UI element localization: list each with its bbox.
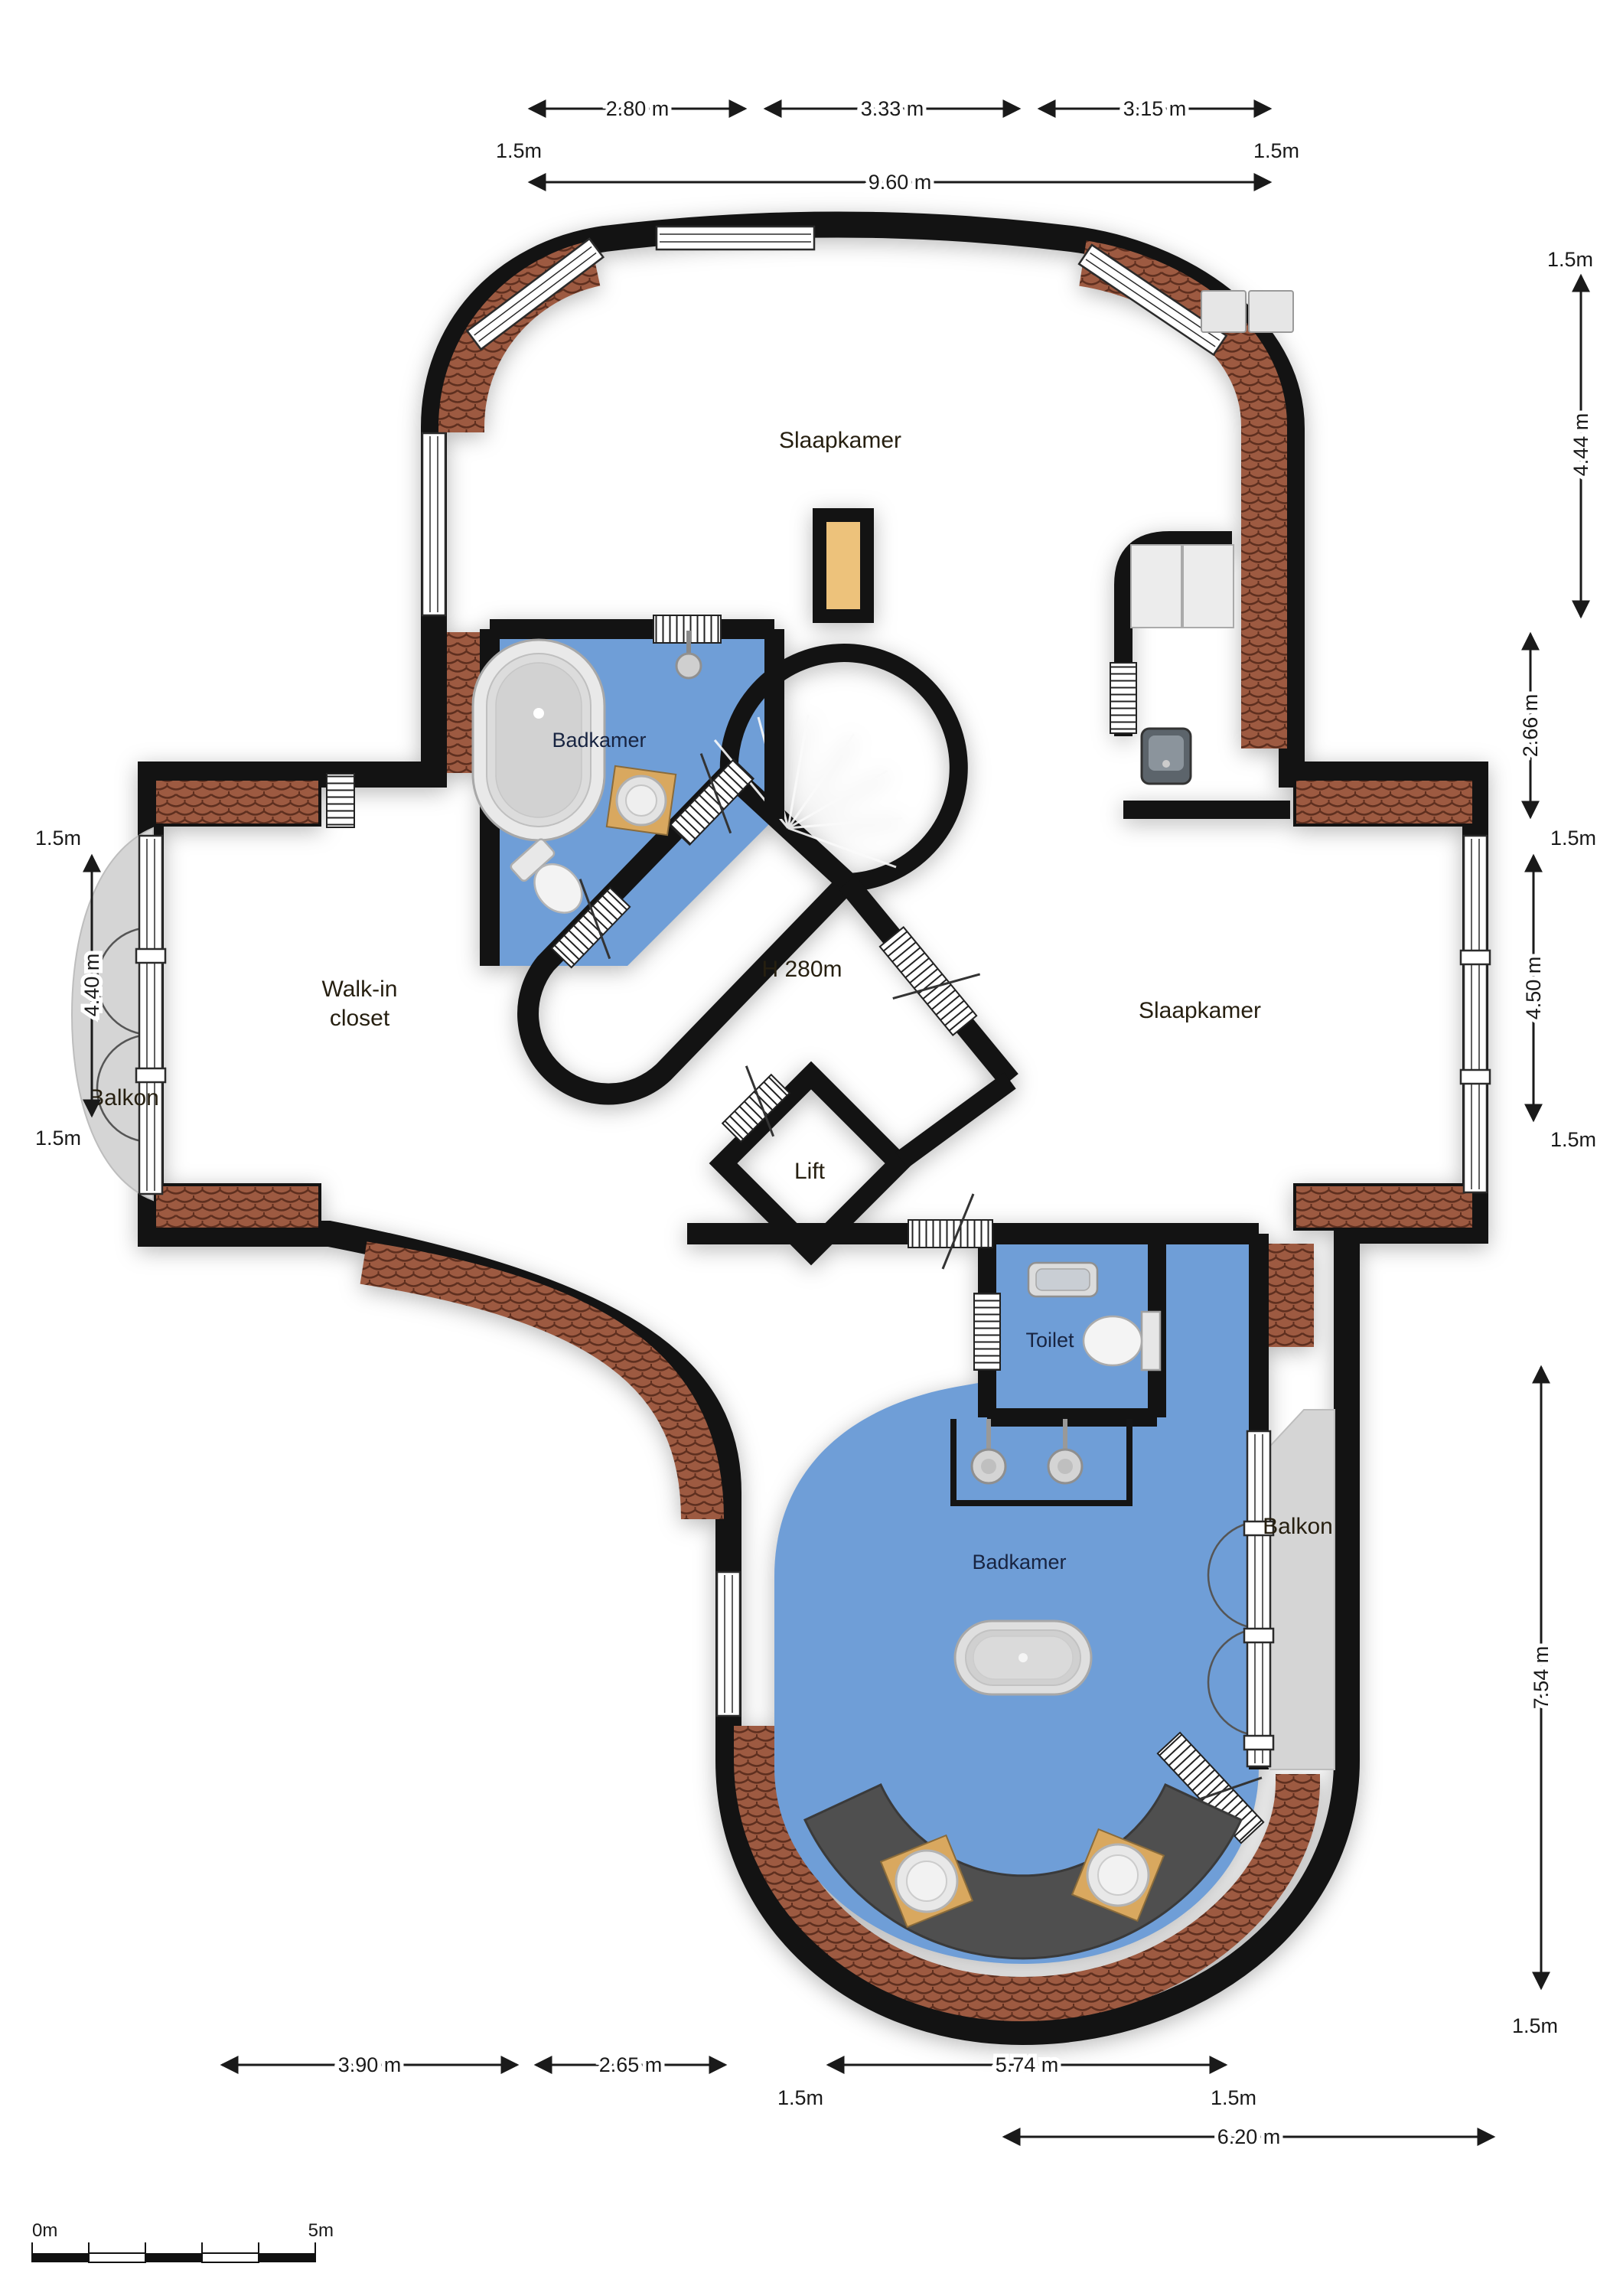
label-badkamer-bottom: Badkamer [972, 1551, 1066, 1574]
dim-right-upper: 4.44 m [1569, 413, 1592, 477]
window-top-center [657, 227, 814, 249]
label-balkon-right: Balkon [1263, 1514, 1333, 1539]
sink-upper-icon [607, 766, 676, 835]
label-ceiling-height: H 280m [761, 957, 842, 982]
label-slaapkamer-top: Slaapkamer [779, 428, 901, 453]
dim-right-lower: 7.54 m [1530, 1646, 1553, 1710]
dim-bottom-1: 3.90 m [338, 2053, 402, 2076]
wall-lift-link [901, 1081, 1010, 1160]
dim-bottom-offset-right: 1.5m [1211, 2086, 1256, 2109]
dimensions-right: 1.5m 4.44 m 2.66 m 1.5m 4.50 m 1.5m 7.54… [1512, 248, 1596, 2037]
toilet-wc-icon [1084, 1312, 1160, 1370]
dim-left-offset-bottom: 1.5m [35, 1127, 81, 1150]
dim-top-offset-left: 1.5m [496, 139, 542, 162]
dim-top-overall: 9.60 m [869, 171, 932, 194]
sink-toilet-icon [1028, 1263, 1097, 1296]
label-lift: Lift [794, 1159, 826, 1184]
dim-right-mid: 2.66 m [1519, 694, 1542, 758]
roof-hatch-scurve [363, 1263, 702, 1519]
dim-top-1: 2.80 m [606, 97, 670, 120]
dim-bottom-2: 2.65 m [599, 2053, 663, 2076]
roof-hatch-bedroom-top [1295, 779, 1474, 825]
window-bath-left [717, 1572, 740, 1716]
door-toilet [974, 1293, 1000, 1370]
chimney [813, 508, 874, 623]
label-slaapkamer-right: Slaapkamer [1139, 998, 1261, 1023]
scale-bar: 0m 5m [32, 2220, 334, 2262]
dim-right-offset-mid-top: 1.5m [1550, 827, 1596, 850]
window-bath-balcony [1244, 1431, 1273, 1766]
door-niche [1110, 663, 1136, 733]
dim-left-height: 4.40 m [80, 954, 103, 1017]
dim-right-offset-mid-bottom: 1.5m [1550, 1128, 1596, 1151]
dimensions-bottom: 3.90 m 2.65 m 1.5m 5.74 m 1.5m 6.20 m [222, 2053, 1494, 2148]
window-balcony-left [136, 836, 165, 1194]
balcony-right [1263, 1410, 1335, 1769]
roof-hatch-bedroom-bottom [1295, 1185, 1474, 1229]
label-toilet: Toilet [1025, 1329, 1074, 1352]
wardrobe-icon [1131, 545, 1234, 628]
roof-hatch-closet-bottom [155, 1185, 320, 1229]
label-walk-in-line1: Walk-in [322, 977, 398, 1002]
roof-hatch-closet-top [155, 779, 320, 825]
dim-top-2: 3.33 m [861, 97, 924, 120]
scale-end-label: 5m [308, 2220, 334, 2241]
dim-right-offset-top: 1.5m [1547, 248, 1593, 271]
freestanding-tub-icon [955, 1621, 1091, 1694]
window-upper-left-wall [422, 433, 445, 615]
roof-hatch-toilet-right [1266, 1244, 1314, 1347]
window-bedroom-right [1461, 836, 1490, 1192]
label-walk-in-line2: closet [330, 1006, 390, 1031]
dimensions-top: 2.80 m 3.33 m 3.15 m 1.5m 1.5m 9.60 m [496, 97, 1299, 194]
label-balkon-left: Balkon [89, 1085, 159, 1110]
dim-bottom-3: 5.74 m [996, 2053, 1059, 2076]
label-badkamer-top: Badkamer [552, 729, 646, 752]
dim-right-offset-bottom: 1.5m [1512, 2014, 1558, 2037]
dim-left-offset-top: 1.5m [35, 827, 81, 850]
dim-top-3: 3.15 m [1123, 97, 1187, 120]
washbasin-niche-icon [1142, 729, 1191, 784]
dim-top-offset-right: 1.5m [1253, 139, 1299, 162]
dim-right-bedroom: 4.50 m [1522, 957, 1545, 1020]
floorplan-canvas: Slaapkamer Badkamer Walk-in closet H 280… [0, 0, 1623, 2296]
door-closet [327, 774, 354, 827]
scale-start-label: 0m [32, 2220, 57, 2241]
dim-bottom-offset-left: 1.5m [777, 2086, 823, 2109]
dim-bottom-overall: 6.20 m [1217, 2125, 1281, 2148]
